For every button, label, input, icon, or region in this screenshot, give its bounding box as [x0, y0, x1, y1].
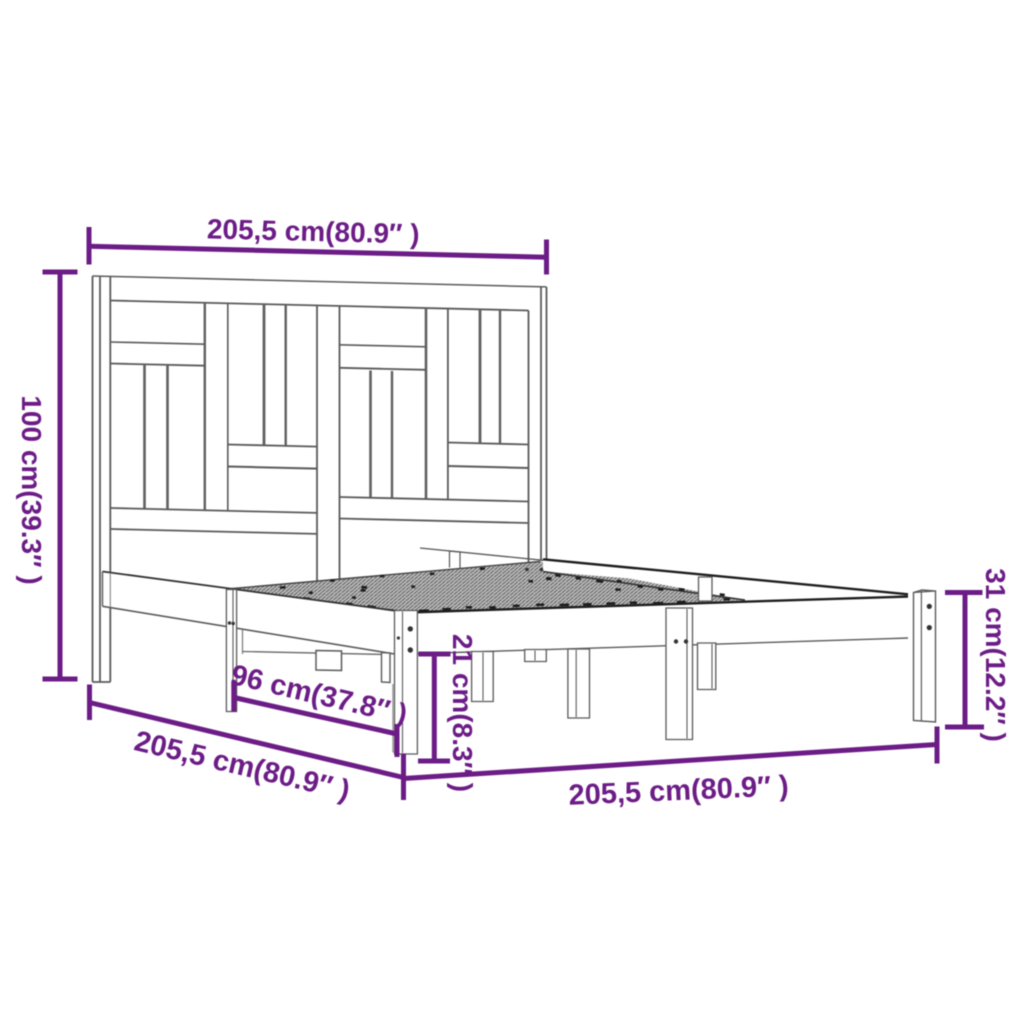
- svg-text:31 cm(12.2″ ): 31 cm(12.2″ ): [980, 568, 1011, 742]
- svg-text:100 cm(39.3″ ): 100 cm(39.3″ ): [16, 395, 47, 584]
- svg-text:205,5 cm(80.9″ ): 205,5 cm(80.9″ ): [207, 213, 420, 249]
- svg-text:21 cm(8.3″ ): 21 cm(8.3″ ): [447, 634, 478, 792]
